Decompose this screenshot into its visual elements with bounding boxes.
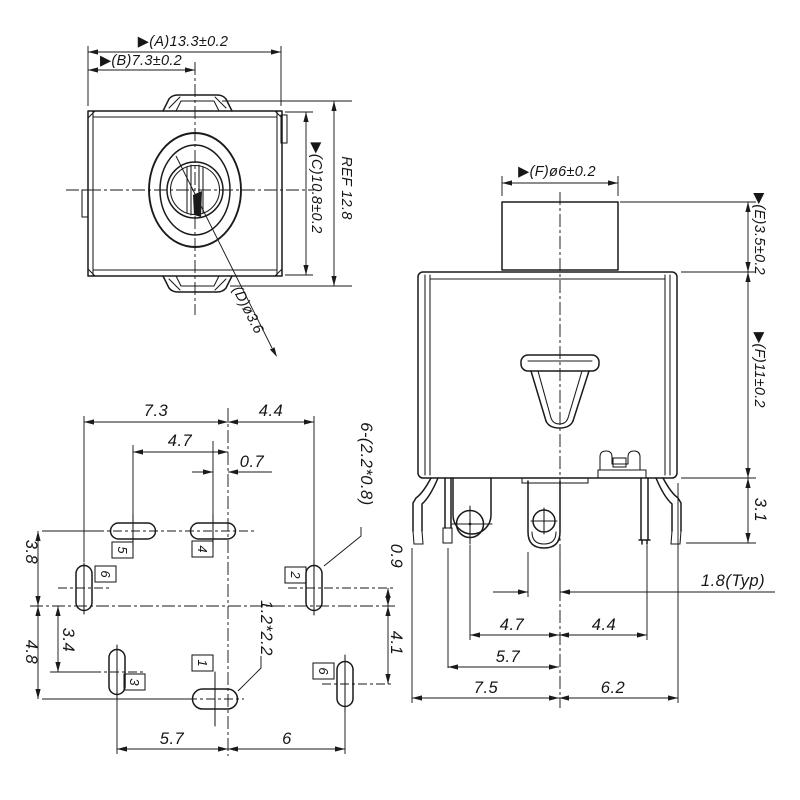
pin-number-4: 4: [195, 545, 210, 552]
dim-7-3-label: 7.3: [144, 402, 169, 420]
pin-number-2: 2: [288, 570, 303, 579]
side-left-hook-leg: [413, 478, 438, 531]
side-hole-leg: [453, 478, 491, 534]
dim-4-7-fp-label: 4.7: [168, 432, 193, 450]
dim-6-label: 6: [282, 730, 292, 748]
pin-number-5: 5: [115, 546, 130, 554]
dim-c-label: ▶(C)10.8±0.2: [308, 142, 324, 233]
engineering-drawing-canvas: ▶(A)13.3±0.2 ▶(B)7.3±0.2 ▶(C)10.8±0.2 RE…: [0, 0, 800, 800]
dim-1-8-typ-label: 1.8(Typ): [701, 572, 765, 590]
pin-number-1: 1: [195, 659, 210, 666]
dim-b-label: ▶(B)7.3±0.2: [100, 53, 182, 69]
dim-5-7-fp-label: 5.7: [160, 730, 185, 748]
front-body-outline: [88, 111, 282, 276]
dim-3-1-label: 3.1: [751, 498, 769, 522]
dim-4-4-fp-label: 4.4: [259, 402, 283, 420]
pin-number-6-right: 6: [316, 667, 331, 675]
front-view: [66, 62, 314, 315]
dim-4-4-side-label: 4.4: [592, 616, 616, 634]
dim-3-8-label: 3.8: [22, 540, 40, 565]
side-body-outline: [418, 272, 677, 478]
side-right-hook-leg: [656, 478, 681, 531]
pin-number-6-left: 6: [98, 570, 113, 578]
pad-note-leader: [238, 656, 261, 691]
side-view: [413, 192, 681, 708]
dim-5-7-side-label: 5.7: [496, 648, 521, 666]
dim-0-9-label: 0.9: [387, 544, 405, 568]
dim-f-dia-label: ▶(F)ø6±0.2: [518, 164, 596, 180]
dim-a-label: ▶(A)13.3±0.2: [138, 34, 228, 50]
ref-dim-label: REF 12.8: [338, 156, 354, 219]
pin-number-boxes: 5 4 6 2 3 1 6: [95, 541, 334, 690]
dim-6-2-label: 6.2: [601, 679, 625, 697]
dim-3-4-label: 3.4: [59, 628, 77, 652]
side-right-leg: [639, 478, 650, 544]
slot-note-label: 6-(2.2*0.8): [357, 422, 375, 505]
engineering-drawing-page: ▶(A)13.3±0.2 ▶(B)7.3±0.2 ▶(C)10.8±0.2 RE…: [0, 0, 800, 800]
front-dimensions: ▶(A)13.3±0.2 ▶(B)7.3±0.2 ▶(C)10.8±0.2 RE…: [88, 34, 354, 357]
dim-0-7-label: 0.7: [240, 453, 265, 471]
footprint-view: 5 4 6 2 3 1 6: [30, 408, 398, 756]
dim-d-label: (D)ø3.6: [229, 284, 267, 337]
slot-note-leader: [324, 527, 361, 566]
dim-7-5-label: 7.5: [474, 679, 499, 697]
side-latch-detail: [598, 451, 646, 478]
dim-e-label: ▶(E)3.5±0.2: [751, 193, 767, 275]
pad-note-label: 1.2*2.2: [257, 600, 275, 656]
side-front-leg: [445, 478, 451, 528]
pin-number-3: 3: [127, 678, 142, 686]
dim-f-height-label: ▶(F)11±0.2: [751, 332, 767, 408]
front-left-lug: [82, 190, 88, 217]
dim-4-1-label: 4.1: [387, 631, 405, 655]
footprint-dimensions: 7.3 4.4 4.7 0.7 6-(2.2*0.8) 0.9 4.1 3.8 …: [22, 402, 405, 754]
side-dimensions: ▶(F)ø6±0.2 ▶(E)3.5±0.2 ▶(F)11±0.2 3.1 1.…: [412, 164, 775, 703]
footprint-centerlines: [30, 408, 398, 756]
dim-4-7-side-label: 4.7: [500, 616, 525, 634]
dim-4-8-label: 4.8: [22, 640, 40, 665]
